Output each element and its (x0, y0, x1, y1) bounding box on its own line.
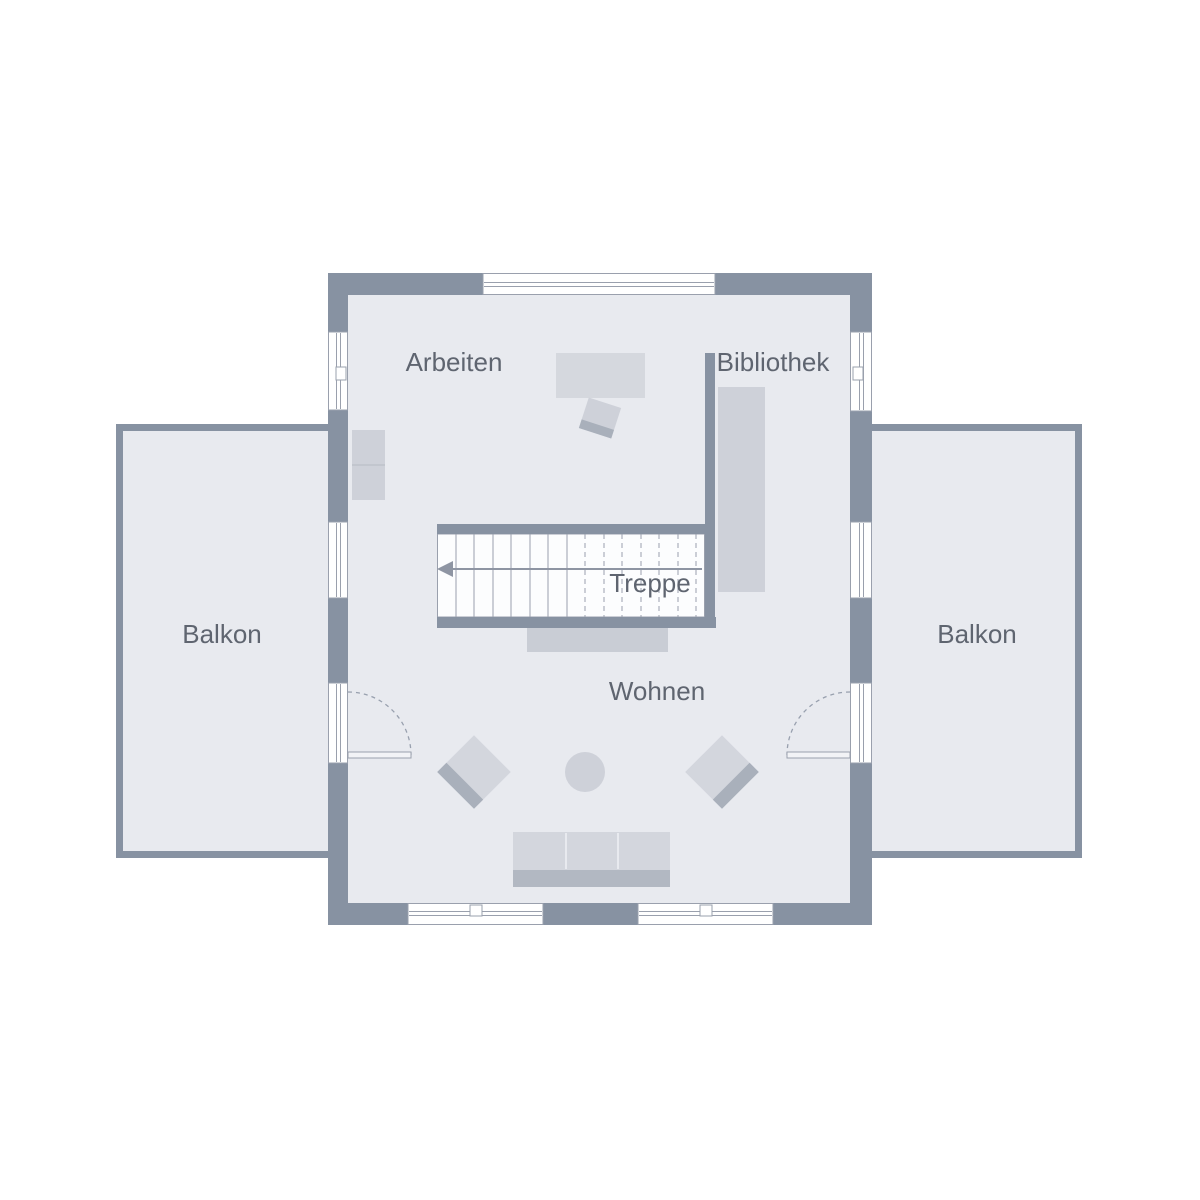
room-label-balkon-left: Balkon (182, 619, 262, 649)
window-handle (853, 367, 863, 380)
room-label-arbeiten: Arbeiten (406, 347, 503, 377)
door-opening-left (329, 683, 348, 763)
stair-landing (527, 628, 668, 652)
door-opening-right (851, 683, 872, 763)
room-label-bibliothek: Bibliothek (717, 347, 831, 377)
window-right-upper (851, 332, 872, 411)
room-label-wohnen: Wohnen (609, 676, 705, 706)
room-label-treppe: Treppe (609, 568, 690, 598)
cabinet (352, 430, 385, 500)
coffee-table (565, 752, 605, 792)
sofa (513, 832, 670, 887)
window-handle (700, 905, 712, 916)
window-handle (336, 367, 346, 380)
window-bottom-right (638, 904, 773, 925)
bookshelf (718, 387, 765, 592)
floor-plan: Arbeiten Bibliothek Treppe Wohnen Balkon… (0, 0, 1200, 1200)
window-top (483, 274, 715, 295)
stair-wall-top (437, 524, 715, 534)
room-label-balkon-right: Balkon (937, 619, 1017, 649)
stair-wall-bottom (437, 617, 716, 628)
window-bottom-left (408, 904, 543, 925)
interior-wall-vertical (705, 353, 715, 628)
desk (556, 353, 645, 398)
floor-plan-canvas: Arbeiten Bibliothek Treppe Wohnen Balkon… (0, 0, 1200, 1200)
window-handle (470, 905, 482, 916)
window-left-lower (329, 522, 348, 598)
window-left-upper (329, 332, 348, 410)
window-right-lower (851, 522, 872, 598)
